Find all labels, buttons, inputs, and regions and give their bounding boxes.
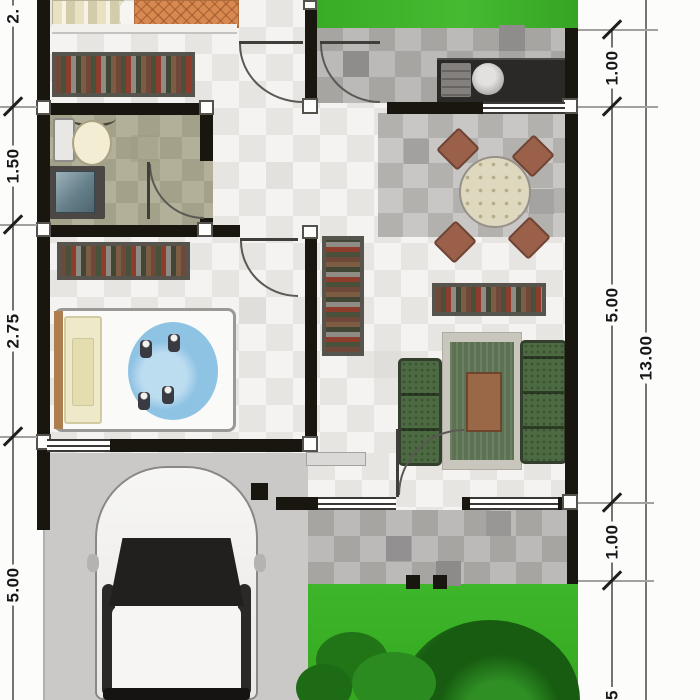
living-front-window-2 xyxy=(470,497,558,510)
blanket-cartoon-figure xyxy=(168,334,180,352)
column xyxy=(302,436,318,452)
extension-line xyxy=(0,224,37,226)
bedroom1-door-leaf xyxy=(239,41,303,44)
dim-label-front-yard-partial: 5 xyxy=(603,687,622,700)
carport-boundary-line xyxy=(43,530,45,700)
tile-accent xyxy=(386,536,411,561)
dim-label-bedroom2: 2.75 xyxy=(4,310,23,351)
dim-label-top-left: 2. xyxy=(4,5,23,26)
bedroom2-door-leaf xyxy=(240,238,298,241)
bed2-pillow-inner xyxy=(72,338,94,406)
tile-accent xyxy=(239,297,266,324)
coffee-table xyxy=(466,372,502,432)
terrace-post xyxy=(406,575,420,589)
wall-kitchen-back xyxy=(387,102,483,114)
column xyxy=(36,222,51,237)
extension-line xyxy=(0,106,37,108)
column xyxy=(302,98,318,114)
floor-plan: 2. 1.50 2.75 5.00 1.00 5.00 1.00 5 13.00 xyxy=(0,0,700,700)
carport-post xyxy=(251,483,268,500)
terrace-post xyxy=(433,575,447,589)
wall-hall-top xyxy=(305,10,317,103)
extension-line xyxy=(578,106,658,108)
bedroom2-front-window xyxy=(47,439,110,452)
extension-line xyxy=(578,502,654,504)
bed1-footboard xyxy=(52,24,237,34)
car-roof xyxy=(112,606,241,700)
extension-line xyxy=(0,436,37,438)
car-mirror-right xyxy=(254,554,266,572)
bed2-headboard-wood xyxy=(54,311,63,429)
car-windshield xyxy=(109,538,244,606)
blanket-cartoon-figure xyxy=(162,386,174,404)
tile-accent xyxy=(404,139,429,164)
wall-front-bedroom2 xyxy=(110,439,240,452)
car xyxy=(95,466,258,700)
tile-accent xyxy=(374,351,401,378)
extension-line xyxy=(578,580,654,582)
column xyxy=(562,494,578,510)
shower-glass xyxy=(55,171,95,213)
blanket-cartoon-figure xyxy=(140,340,152,358)
back-garden xyxy=(317,0,578,28)
dim-label-bathroom: 1.50 xyxy=(4,145,23,186)
wardrobe-bedroom1 xyxy=(52,52,195,97)
bathroom-door-leaf xyxy=(147,162,150,219)
wall-hall-middle xyxy=(305,233,317,440)
car-front-bumper xyxy=(103,688,250,700)
back-door-leaf xyxy=(320,41,380,44)
kitchen-sink-basin xyxy=(472,63,504,95)
toilet-bowl xyxy=(72,120,112,166)
column xyxy=(199,100,214,115)
tile-accent xyxy=(486,511,511,536)
wardrobe-bedroom2 xyxy=(57,242,190,280)
kitchen-window xyxy=(483,102,565,114)
wall-bedroom1-bathroom xyxy=(37,103,213,115)
column xyxy=(302,225,318,239)
car-mirror-left xyxy=(87,554,99,572)
column xyxy=(36,100,51,115)
sofa-right xyxy=(520,340,567,464)
entry-step xyxy=(306,452,366,466)
wall-bathroom-right-upper xyxy=(200,115,213,161)
wall-front-door-jamb xyxy=(462,497,470,510)
dim-label-back-garden: 1.00 xyxy=(603,47,622,88)
extension-line xyxy=(578,29,658,31)
dim-label-total: 13.00 xyxy=(637,332,656,383)
tile-accent xyxy=(499,25,525,51)
wall-terrace-stub xyxy=(276,497,308,510)
front-door-leaf xyxy=(396,429,399,497)
column xyxy=(197,222,213,237)
blanket-cartoon-figure xyxy=(138,392,150,410)
kitchen-sink-drainer xyxy=(441,63,471,97)
column xyxy=(303,0,317,10)
dim-label-carport: 5.00 xyxy=(4,564,23,605)
dimension-line-right-inner xyxy=(611,28,613,700)
wall-right-stub xyxy=(567,510,578,584)
tile-accent xyxy=(529,189,554,214)
hall-shelf-cabinet xyxy=(322,236,364,356)
tv-cabinet xyxy=(432,283,546,316)
living-front-window-1 xyxy=(318,497,396,510)
dim-label-terrace: 1.00 xyxy=(603,521,622,562)
tile-accent xyxy=(266,162,293,189)
tile-accent xyxy=(131,135,158,162)
dim-label-main-rooms: 5.00 xyxy=(603,284,622,325)
